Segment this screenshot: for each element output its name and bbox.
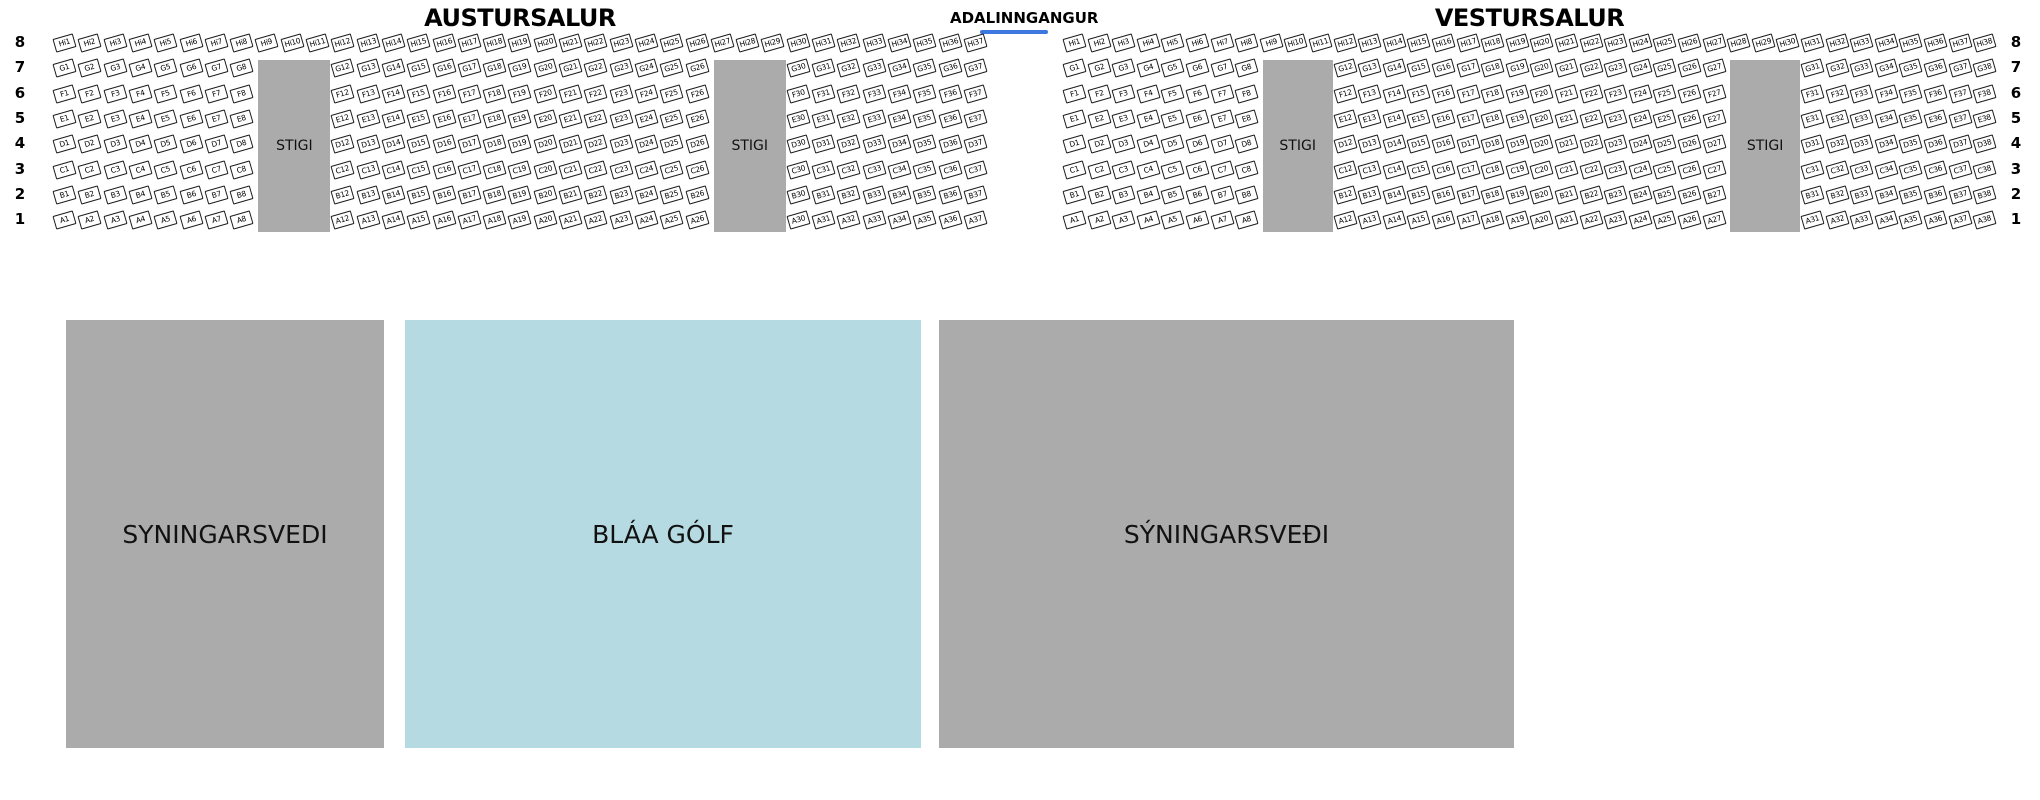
seat-austursalur-Hi17[interactable]: Hi17	[457, 33, 481, 52]
seat-austursalur-G15[interactable]: G15	[407, 59, 431, 78]
seat-vestursalur-E15[interactable]: E15	[1407, 109, 1431, 128]
seat-vestursalur-E20[interactable]: E20	[1530, 109, 1554, 128]
seat-austursalur-A14[interactable]: A14	[381, 210, 405, 229]
seat-vestursalur-D2[interactable]: D2	[1087, 135, 1111, 154]
seat-austursalur-Hi33[interactable]: Hi33	[862, 33, 886, 52]
seat-austursalur-A36[interactable]: A36	[938, 210, 962, 229]
seat-austursalur-A31[interactable]: A31	[811, 210, 835, 229]
seat-austursalur-B13[interactable]: B13	[356, 185, 380, 204]
seat-austursalur-B19[interactable]: B19	[508, 185, 532, 204]
seat-austursalur-Hi6[interactable]: Hi6	[179, 33, 203, 52]
seat-austursalur-E15[interactable]: E15	[407, 109, 431, 128]
seat-vestursalur-B38[interactable]: B38	[1973, 185, 1997, 204]
seat-austursalur-A25[interactable]: A25	[660, 210, 684, 229]
seat-vestursalur-Hi36[interactable]: Hi36	[1923, 33, 1947, 52]
seat-austursalur-B1[interactable]: B1	[52, 185, 76, 204]
seat-austursalur-A12[interactable]: A12	[331, 210, 355, 229]
seat-vestursalur-C8[interactable]: C8	[1235, 160, 1259, 179]
seat-vestursalur-D17[interactable]: D17	[1456, 135, 1480, 154]
seat-austursalur-C4[interactable]: C4	[128, 160, 152, 179]
seat-austursalur-C3[interactable]: C3	[103, 160, 127, 179]
seat-austursalur-Hi34[interactable]: Hi34	[887, 33, 911, 52]
seat-austursalur-Hi13[interactable]: Hi13	[356, 33, 380, 52]
seat-austursalur-G19[interactable]: G19	[508, 59, 532, 78]
seat-vestursalur-D23[interactable]: D23	[1604, 135, 1628, 154]
seat-vestursalur-B1[interactable]: B1	[1062, 185, 1086, 204]
seat-austursalur-C7[interactable]: C7	[204, 160, 228, 179]
seat-vestursalur-Hi25[interactable]: Hi25	[1653, 33, 1677, 52]
seat-austursalur-G34[interactable]: G34	[887, 59, 911, 78]
seat-austursalur-F8[interactable]: F8	[230, 84, 254, 103]
seat-vestursalur-G7[interactable]: G7	[1210, 59, 1234, 78]
seat-vestursalur-D13[interactable]: D13	[1358, 135, 1382, 154]
seat-vestursalur-G36[interactable]: G36	[1923, 59, 1947, 78]
seat-vestursalur-F37[interactable]: F37	[1948, 84, 1972, 103]
seat-vestursalur-C23[interactable]: C23	[1604, 160, 1628, 179]
seat-vestursalur-Hi10[interactable]: Hi10	[1284, 33, 1308, 52]
seat-vestursalur-Hi33[interactable]: Hi33	[1850, 33, 1874, 52]
seat-austursalur-D14[interactable]: D14	[381, 135, 405, 154]
seat-vestursalur-F13[interactable]: F13	[1358, 84, 1382, 103]
seat-austursalur-Hi28[interactable]: Hi28	[736, 33, 760, 52]
seat-vestursalur-F8[interactable]: F8	[1235, 84, 1259, 103]
seat-austursalur-B14[interactable]: B14	[381, 185, 405, 204]
seat-austursalur-E22[interactable]: E22	[584, 109, 608, 128]
seat-austursalur-G25[interactable]: G25	[660, 59, 684, 78]
seat-vestursalur-D20[interactable]: D20	[1530, 135, 1554, 154]
seat-austursalur-C31[interactable]: C31	[811, 160, 835, 179]
seat-vestursalur-C18[interactable]: C18	[1481, 160, 1505, 179]
seat-austursalur-B24[interactable]: B24	[634, 185, 658, 204]
seat-vestursalur-A19[interactable]: A19	[1505, 210, 1529, 229]
seat-austursalur-G21[interactable]: G21	[558, 59, 582, 78]
seat-austursalur-F31[interactable]: F31	[811, 84, 835, 103]
seat-austursalur-F6[interactable]: F6	[179, 84, 203, 103]
seat-vestursalur-E25[interactable]: E25	[1653, 109, 1677, 128]
seat-vestursalur-D32[interactable]: D32	[1825, 135, 1849, 154]
seat-austursalur-D6[interactable]: D6	[179, 135, 203, 154]
seat-austursalur-D23[interactable]: D23	[609, 135, 633, 154]
seat-vestursalur-D16[interactable]: D16	[1431, 135, 1455, 154]
seat-vestursalur-Hi11[interactable]: Hi11	[1308, 33, 1332, 52]
seat-austursalur-A5[interactable]: A5	[154, 210, 178, 229]
seat-vestursalur-Hi32[interactable]: Hi32	[1825, 33, 1849, 52]
seat-vestursalur-A31[interactable]: A31	[1800, 210, 1824, 229]
seat-austursalur-Hi11[interactable]: Hi11	[305, 33, 329, 52]
seat-austursalur-A20[interactable]: A20	[533, 210, 557, 229]
seat-vestursalur-A1[interactable]: A1	[1062, 210, 1086, 229]
seat-vestursalur-B14[interactable]: B14	[1382, 185, 1406, 204]
seat-austursalur-D35[interactable]: D35	[913, 135, 937, 154]
seat-austursalur-B18[interactable]: B18	[483, 185, 507, 204]
seat-vestursalur-A38[interactable]: A38	[1973, 210, 1997, 229]
seat-vestursalur-B17[interactable]: B17	[1456, 185, 1480, 204]
seat-austursalur-Hi9[interactable]: Hi9	[255, 33, 279, 52]
seat-austursalur-Hi32[interactable]: Hi32	[837, 33, 861, 52]
seat-vestursalur-F35[interactable]: F35	[1899, 84, 1923, 103]
seat-austursalur-E18[interactable]: E18	[483, 109, 507, 128]
seat-austursalur-Hi12[interactable]: Hi12	[331, 33, 355, 52]
seat-vestursalur-C4[interactable]: C4	[1136, 160, 1160, 179]
seat-vestursalur-Hi7[interactable]: Hi7	[1210, 33, 1234, 52]
seat-vestursalur-Hi20[interactable]: Hi20	[1530, 33, 1554, 52]
seat-austursalur-B30[interactable]: B30	[786, 185, 810, 204]
seat-austursalur-F17[interactable]: F17	[457, 84, 481, 103]
seat-austursalur-C6[interactable]: C6	[179, 160, 203, 179]
seat-vestursalur-G19[interactable]: G19	[1505, 59, 1529, 78]
seat-austursalur-G31[interactable]: G31	[811, 59, 835, 78]
seat-austursalur-E31[interactable]: E31	[811, 109, 835, 128]
seat-austursalur-B17[interactable]: B17	[457, 185, 481, 204]
seat-vestursalur-F4[interactable]: F4	[1136, 84, 1160, 103]
seat-vestursalur-C7[interactable]: C7	[1210, 160, 1234, 179]
seat-vestursalur-Hi22[interactable]: Hi22	[1579, 33, 1603, 52]
seat-austursalur-C19[interactable]: C19	[508, 160, 532, 179]
seat-austursalur-F4[interactable]: F4	[128, 84, 152, 103]
seat-vestursalur-G31[interactable]: G31	[1800, 59, 1824, 78]
seat-vestursalur-G20[interactable]: G20	[1530, 59, 1554, 78]
seat-austursalur-A30[interactable]: A30	[786, 210, 810, 229]
seat-austursalur-E2[interactable]: E2	[78, 109, 102, 128]
seat-vestursalur-G18[interactable]: G18	[1481, 59, 1505, 78]
seat-austursalur-D26[interactable]: D26	[685, 135, 709, 154]
seat-austursalur-B12[interactable]: B12	[331, 185, 355, 204]
seat-austursalur-E25[interactable]: E25	[660, 109, 684, 128]
seat-vestursalur-F34[interactable]: F34	[1874, 84, 1898, 103]
seat-austursalur-G22[interactable]: G22	[584, 59, 608, 78]
seat-austursalur-F34[interactable]: F34	[887, 84, 911, 103]
seat-austursalur-C12[interactable]: C12	[331, 160, 355, 179]
seat-vestursalur-E3[interactable]: E3	[1112, 109, 1136, 128]
seat-vestursalur-E19[interactable]: E19	[1505, 109, 1529, 128]
seat-austursalur-Hi7[interactable]: Hi7	[204, 33, 228, 52]
seat-austursalur-C37[interactable]: C37	[963, 160, 987, 179]
seat-austursalur-D1[interactable]: D1	[52, 135, 76, 154]
seat-vestursalur-F21[interactable]: F21	[1554, 84, 1578, 103]
seat-vestursalur-F22[interactable]: F22	[1579, 84, 1603, 103]
seat-austursalur-F2[interactable]: F2	[78, 84, 102, 103]
seat-vestursalur-B35[interactable]: B35	[1899, 185, 1923, 204]
seat-austursalur-F26[interactable]: F26	[685, 84, 709, 103]
seat-austursalur-C26[interactable]: C26	[685, 160, 709, 179]
seat-vestursalur-A15[interactable]: A15	[1407, 210, 1431, 229]
seat-vestursalur-F24[interactable]: F24	[1628, 84, 1652, 103]
seat-austursalur-E4[interactable]: E4	[128, 109, 152, 128]
seat-vestursalur-B19[interactable]: B19	[1505, 185, 1529, 204]
seat-vestursalur-C16[interactable]: C16	[1431, 160, 1455, 179]
seat-austursalur-E1[interactable]: E1	[52, 109, 76, 128]
seat-austursalur-F22[interactable]: F22	[584, 84, 608, 103]
seat-vestursalur-G26[interactable]: G26	[1677, 59, 1701, 78]
seat-austursalur-A19[interactable]: A19	[508, 210, 532, 229]
seat-vestursalur-E37[interactable]: E37	[1948, 109, 1972, 128]
seat-vestursalur-D26[interactable]: D26	[1677, 135, 1701, 154]
seat-vestursalur-D8[interactable]: D8	[1235, 135, 1259, 154]
seat-austursalur-D15[interactable]: D15	[407, 135, 431, 154]
seat-austursalur-F35[interactable]: F35	[913, 84, 937, 103]
seat-vestursalur-B34[interactable]: B34	[1874, 185, 1898, 204]
seat-vestursalur-E2[interactable]: E2	[1087, 109, 1111, 128]
seat-vestursalur-D21[interactable]: D21	[1554, 135, 1578, 154]
seat-vestursalur-A25[interactable]: A25	[1653, 210, 1677, 229]
seat-austursalur-F20[interactable]: F20	[533, 84, 557, 103]
seat-vestursalur-D38[interactable]: D38	[1973, 135, 1997, 154]
seat-austursalur-Hi19[interactable]: Hi19	[508, 33, 532, 52]
seat-vestursalur-G23[interactable]: G23	[1604, 59, 1628, 78]
seat-vestursalur-F3[interactable]: F3	[1112, 84, 1136, 103]
seat-austursalur-G20[interactable]: G20	[533, 59, 557, 78]
seat-vestursalur-A33[interactable]: A33	[1850, 210, 1874, 229]
seat-vestursalur-D12[interactable]: D12	[1333, 135, 1357, 154]
seat-vestursalur-G37[interactable]: G37	[1948, 59, 1972, 78]
seat-vestursalur-Hi35[interactable]: Hi35	[1899, 33, 1923, 52]
seat-vestursalur-F5[interactable]: F5	[1161, 84, 1185, 103]
seat-austursalur-B3[interactable]: B3	[103, 185, 127, 204]
seat-vestursalur-B6[interactable]: B6	[1185, 185, 1209, 204]
seat-austursalur-F37[interactable]: F37	[963, 84, 987, 103]
seat-vestursalur-G34[interactable]: G34	[1874, 59, 1898, 78]
seat-vestursalur-E8[interactable]: E8	[1235, 109, 1259, 128]
seat-vestursalur-F17[interactable]: F17	[1456, 84, 1480, 103]
seat-vestursalur-A14[interactable]: A14	[1382, 210, 1406, 229]
seat-vestursalur-G5[interactable]: G5	[1161, 59, 1185, 78]
seat-austursalur-G14[interactable]: G14	[381, 59, 405, 78]
seat-austursalur-C24[interactable]: C24	[634, 160, 658, 179]
seat-austursalur-Hi24[interactable]: Hi24	[634, 33, 658, 52]
seat-vestursalur-B32[interactable]: B32	[1825, 185, 1849, 204]
seat-vestursalur-Hi13[interactable]: Hi13	[1358, 33, 1382, 52]
seat-vestursalur-A37[interactable]: A37	[1948, 210, 1972, 229]
seat-austursalur-C35[interactable]: C35	[913, 160, 937, 179]
seat-vestursalur-A22[interactable]: A22	[1579, 210, 1603, 229]
seat-austursalur-D36[interactable]: D36	[938, 135, 962, 154]
seat-austursalur-B16[interactable]: B16	[432, 185, 456, 204]
seat-austursalur-G5[interactable]: G5	[154, 59, 178, 78]
seat-vestursalur-A7[interactable]: A7	[1210, 210, 1234, 229]
seat-vestursalur-F1[interactable]: F1	[1062, 84, 1086, 103]
seat-vestursalur-C5[interactable]: C5	[1161, 160, 1185, 179]
seat-vestursalur-G16[interactable]: G16	[1431, 59, 1455, 78]
seat-vestursalur-D1[interactable]: D1	[1062, 135, 1086, 154]
seat-vestursalur-C15[interactable]: C15	[1407, 160, 1431, 179]
seat-vestursalur-Hi2[interactable]: Hi2	[1087, 33, 1111, 52]
floor-area-1[interactable]: SYNINGARSVEDI	[66, 320, 384, 748]
seat-austursalur-E6[interactable]: E6	[179, 109, 203, 128]
seat-austursalur-E14[interactable]: E14	[381, 109, 405, 128]
seat-vestursalur-E12[interactable]: E12	[1333, 109, 1357, 128]
seat-vestursalur-E5[interactable]: E5	[1161, 109, 1185, 128]
seat-vestursalur-D24[interactable]: D24	[1628, 135, 1652, 154]
seat-austursalur-B25[interactable]: B25	[660, 185, 684, 204]
seat-vestursalur-E6[interactable]: E6	[1185, 109, 1209, 128]
seat-vestursalur-A3[interactable]: A3	[1112, 210, 1136, 229]
seat-vestursalur-Hi19[interactable]: Hi19	[1505, 33, 1529, 52]
seat-vestursalur-A35[interactable]: A35	[1899, 210, 1923, 229]
seat-austursalur-B7[interactable]: B7	[204, 185, 228, 204]
seat-vestursalur-A23[interactable]: A23	[1604, 210, 1628, 229]
seat-austursalur-Hi14[interactable]: Hi14	[381, 33, 405, 52]
seat-austursalur-B37[interactable]: B37	[963, 185, 987, 204]
seat-austursalur-E36[interactable]: E36	[938, 109, 962, 128]
seat-austursalur-D30[interactable]: D30	[786, 135, 810, 154]
seat-austursalur-E8[interactable]: E8	[230, 109, 254, 128]
seat-vestursalur-G22[interactable]: G22	[1579, 59, 1603, 78]
seat-vestursalur-B23[interactable]: B23	[1604, 185, 1628, 204]
seat-vestursalur-Hi28[interactable]: Hi28	[1727, 33, 1751, 52]
seat-vestursalur-G13[interactable]: G13	[1358, 59, 1382, 78]
seat-austursalur-E23[interactable]: E23	[609, 109, 633, 128]
seat-austursalur-A35[interactable]: A35	[913, 210, 937, 229]
seat-vestursalur-D3[interactable]: D3	[1112, 135, 1136, 154]
seat-austursalur-A22[interactable]: A22	[584, 210, 608, 229]
seat-austursalur-G18[interactable]: G18	[483, 59, 507, 78]
seat-austursalur-C15[interactable]: C15	[407, 160, 431, 179]
seat-vestursalur-C26[interactable]: C26	[1677, 160, 1701, 179]
seat-austursalur-B2[interactable]: B2	[78, 185, 102, 204]
seat-vestursalur-A27[interactable]: A27	[1702, 210, 1726, 229]
seat-austursalur-F13[interactable]: F13	[356, 84, 380, 103]
seat-austursalur-G26[interactable]: G26	[685, 59, 709, 78]
seat-austursalur-C13[interactable]: C13	[356, 160, 380, 179]
seat-vestursalur-A17[interactable]: A17	[1456, 210, 1480, 229]
seat-austursalur-E30[interactable]: E30	[786, 109, 810, 128]
seat-vestursalur-G17[interactable]: G17	[1456, 59, 1480, 78]
seat-austursalur-A13[interactable]: A13	[356, 210, 380, 229]
seat-austursalur-C17[interactable]: C17	[457, 160, 481, 179]
seat-austursalur-A8[interactable]: A8	[230, 210, 254, 229]
seat-vestursalur-Hi31[interactable]: Hi31	[1800, 33, 1824, 52]
seat-vestursalur-Hi21[interactable]: Hi21	[1554, 33, 1578, 52]
seat-austursalur-C22[interactable]: C22	[584, 160, 608, 179]
seat-austursalur-Hi35[interactable]: Hi35	[913, 33, 937, 52]
seat-austursalur-A32[interactable]: A32	[837, 210, 861, 229]
seat-vestursalur-A16[interactable]: A16	[1431, 210, 1455, 229]
seat-vestursalur-Hi29[interactable]: Hi29	[1751, 33, 1775, 52]
seat-austursalur-A7[interactable]: A7	[204, 210, 228, 229]
seat-austursalur-D37[interactable]: D37	[963, 135, 987, 154]
seat-austursalur-Hi21[interactable]: Hi21	[558, 33, 582, 52]
seat-vestursalur-F16[interactable]: F16	[1431, 84, 1455, 103]
seat-vestursalur-Hi38[interactable]: Hi38	[1973, 33, 1997, 52]
seat-austursalur-G2[interactable]: G2	[78, 59, 102, 78]
seat-vestursalur-B33[interactable]: B33	[1850, 185, 1874, 204]
seat-austursalur-E33[interactable]: E33	[862, 109, 886, 128]
seat-austursalur-F21[interactable]: F21	[558, 84, 582, 103]
seat-vestursalur-C25[interactable]: C25	[1653, 160, 1677, 179]
seat-austursalur-D5[interactable]: D5	[154, 135, 178, 154]
seat-austursalur-A3[interactable]: A3	[103, 210, 127, 229]
seat-austursalur-Hi23[interactable]: Hi23	[609, 33, 633, 52]
seat-austursalur-D8[interactable]: D8	[230, 135, 254, 154]
seat-vestursalur-F36[interactable]: F36	[1923, 84, 1947, 103]
seat-austursalur-G30[interactable]: G30	[786, 59, 810, 78]
seat-austursalur-Hi8[interactable]: Hi8	[230, 33, 254, 52]
seat-austursalur-A4[interactable]: A4	[128, 210, 152, 229]
seat-austursalur-D12[interactable]: D12	[331, 135, 355, 154]
seat-vestursalur-E34[interactable]: E34	[1874, 109, 1898, 128]
seat-austursalur-E3[interactable]: E3	[103, 109, 127, 128]
seat-vestursalur-A4[interactable]: A4	[1136, 210, 1160, 229]
seat-vestursalur-B26[interactable]: B26	[1677, 185, 1701, 204]
seat-vestursalur-B7[interactable]: B7	[1210, 185, 1234, 204]
seat-austursalur-D25[interactable]: D25	[660, 135, 684, 154]
seat-austursalur-B22[interactable]: B22	[584, 185, 608, 204]
seat-vestursalur-E33[interactable]: E33	[1850, 109, 1874, 128]
seat-vestursalur-F14[interactable]: F14	[1382, 84, 1406, 103]
seat-austursalur-Hi25[interactable]: Hi25	[660, 33, 684, 52]
seat-vestursalur-Hi17[interactable]: Hi17	[1456, 33, 1480, 52]
seat-austursalur-F25[interactable]: F25	[660, 84, 684, 103]
seat-austursalur-G33[interactable]: G33	[862, 59, 886, 78]
floor-area-3[interactable]: SÝNINGARSVEÐI	[939, 320, 1514, 748]
seat-vestursalur-D18[interactable]: D18	[1481, 135, 1505, 154]
seat-vestursalur-E17[interactable]: E17	[1456, 109, 1480, 128]
seat-austursalur-F36[interactable]: F36	[938, 84, 962, 103]
seat-austursalur-Hi27[interactable]: Hi27	[710, 33, 734, 52]
seat-vestursalur-E7[interactable]: E7	[1210, 109, 1234, 128]
seat-vestursalur-D4[interactable]: D4	[1136, 135, 1160, 154]
seat-vestursalur-A5[interactable]: A5	[1161, 210, 1185, 229]
seat-vestursalur-A32[interactable]: A32	[1825, 210, 1849, 229]
seat-austursalur-D34[interactable]: D34	[887, 135, 911, 154]
seat-vestursalur-A2[interactable]: A2	[1087, 210, 1111, 229]
seat-austursalur-F32[interactable]: F32	[837, 84, 861, 103]
seat-austursalur-F12[interactable]: F12	[331, 84, 355, 103]
seat-vestursalur-B22[interactable]: B22	[1579, 185, 1603, 204]
seat-vestursalur-E22[interactable]: E22	[1579, 109, 1603, 128]
seat-vestursalur-C31[interactable]: C31	[1800, 160, 1824, 179]
seat-austursalur-G12[interactable]: G12	[331, 59, 355, 78]
seat-vestursalur-A24[interactable]: A24	[1628, 210, 1652, 229]
seat-austursalur-G23[interactable]: G23	[609, 59, 633, 78]
seat-vestursalur-A34[interactable]: A34	[1874, 210, 1898, 229]
seat-austursalur-D24[interactable]: D24	[634, 135, 658, 154]
seat-vestursalur-F12[interactable]: F12	[1333, 84, 1357, 103]
seat-vestursalur-B2[interactable]: B2	[1087, 185, 1111, 204]
seat-vestursalur-C33[interactable]: C33	[1850, 160, 1874, 179]
seat-vestursalur-C20[interactable]: C20	[1530, 160, 1554, 179]
seat-vestursalur-G15[interactable]: G15	[1407, 59, 1431, 78]
seat-vestursalur-C35[interactable]: C35	[1899, 160, 1923, 179]
seat-vestursalur-E23[interactable]: E23	[1604, 109, 1628, 128]
seat-austursalur-E20[interactable]: E20	[533, 109, 557, 128]
seat-vestursalur-F23[interactable]: F23	[1604, 84, 1628, 103]
seat-vestursalur-Hi24[interactable]: Hi24	[1628, 33, 1652, 52]
seat-vestursalur-E26[interactable]: E26	[1677, 109, 1701, 128]
seat-vestursalur-G27[interactable]: G27	[1702, 59, 1726, 78]
seat-austursalur-D33[interactable]: D33	[862, 135, 886, 154]
seat-vestursalur-B8[interactable]: B8	[1235, 185, 1259, 204]
seat-vestursalur-Hi4[interactable]: Hi4	[1136, 33, 1160, 52]
seat-vestursalur-Hi26[interactable]: Hi26	[1677, 33, 1701, 52]
seat-vestursalur-G6[interactable]: G6	[1185, 59, 1209, 78]
seat-vestursalur-Hi37[interactable]: Hi37	[1948, 33, 1972, 52]
seat-austursalur-D22[interactable]: D22	[584, 135, 608, 154]
seat-austursalur-G32[interactable]: G32	[837, 59, 861, 78]
seat-vestursalur-C3[interactable]: C3	[1112, 160, 1136, 179]
seat-austursalur-Hi22[interactable]: Hi22	[584, 33, 608, 52]
seat-austursalur-A37[interactable]: A37	[963, 210, 987, 229]
seat-vestursalur-Hi5[interactable]: Hi5	[1161, 33, 1185, 52]
seat-austursalur-E34[interactable]: E34	[887, 109, 911, 128]
seat-vestursalur-B4[interactable]: B4	[1136, 185, 1160, 204]
seat-vestursalur-C34[interactable]: C34	[1874, 160, 1898, 179]
seat-vestursalur-C38[interactable]: C38	[1973, 160, 1997, 179]
seat-vestursalur-A26[interactable]: A26	[1677, 210, 1701, 229]
seat-austursalur-A18[interactable]: A18	[483, 210, 507, 229]
seat-austursalur-C23[interactable]: C23	[609, 160, 633, 179]
seat-austursalur-B31[interactable]: B31	[811, 185, 835, 204]
